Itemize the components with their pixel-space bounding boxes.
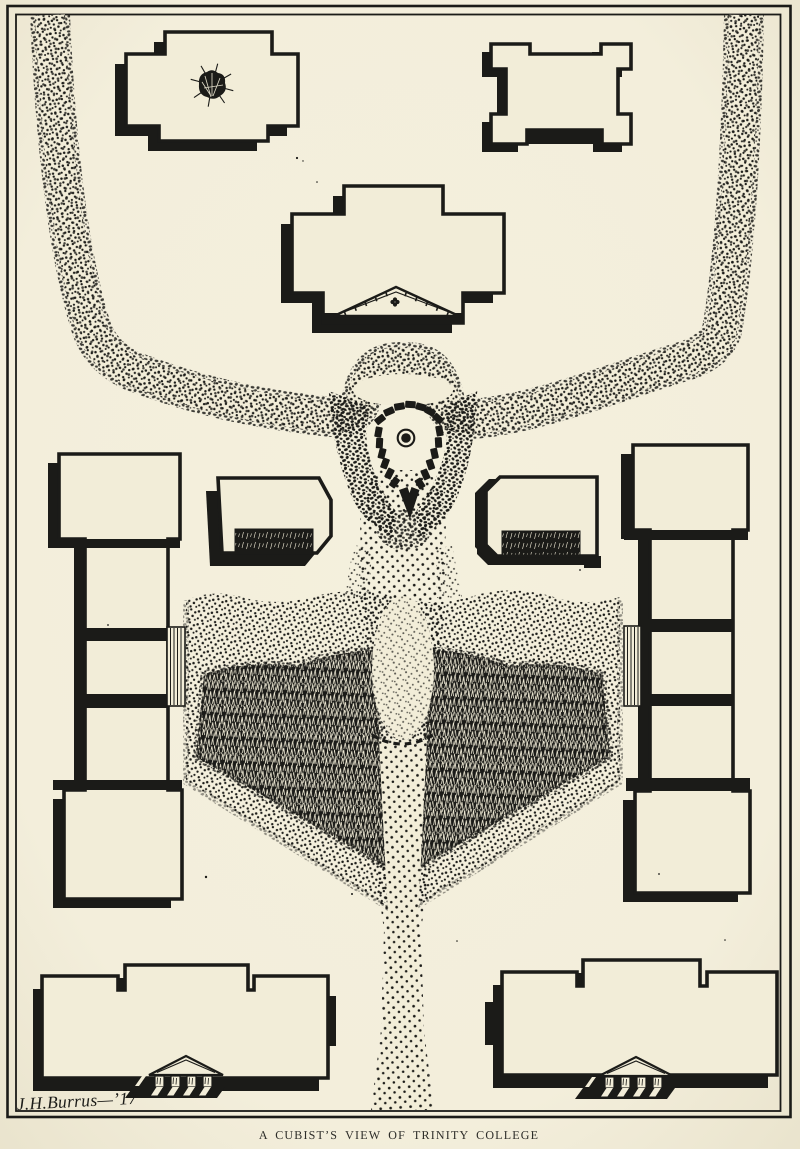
svg-text:A CUBIST’S VIEW OF TRINITY COL: A CUBIST’S VIEW OF TRINITY COLLEGE <box>259 1128 539 1142</box>
